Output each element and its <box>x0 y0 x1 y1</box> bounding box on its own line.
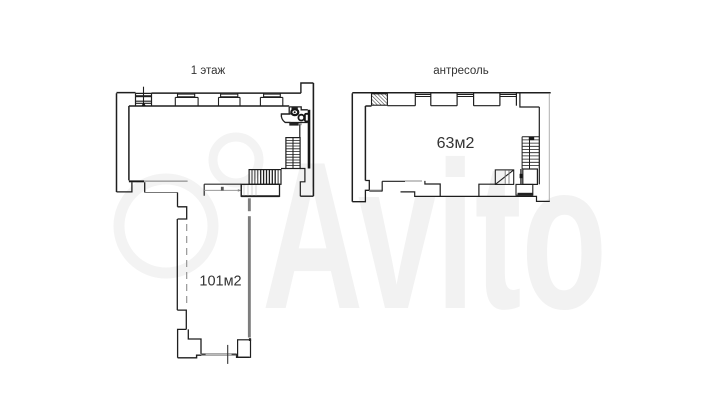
svg-text:63м2: 63м2 <box>437 135 475 152</box>
svg-text:101м2: 101м2 <box>199 274 241 290</box>
svg-text:антресоль: антресоль <box>433 65 489 77</box>
svg-text:1 этаж: 1 этаж <box>191 65 226 77</box>
